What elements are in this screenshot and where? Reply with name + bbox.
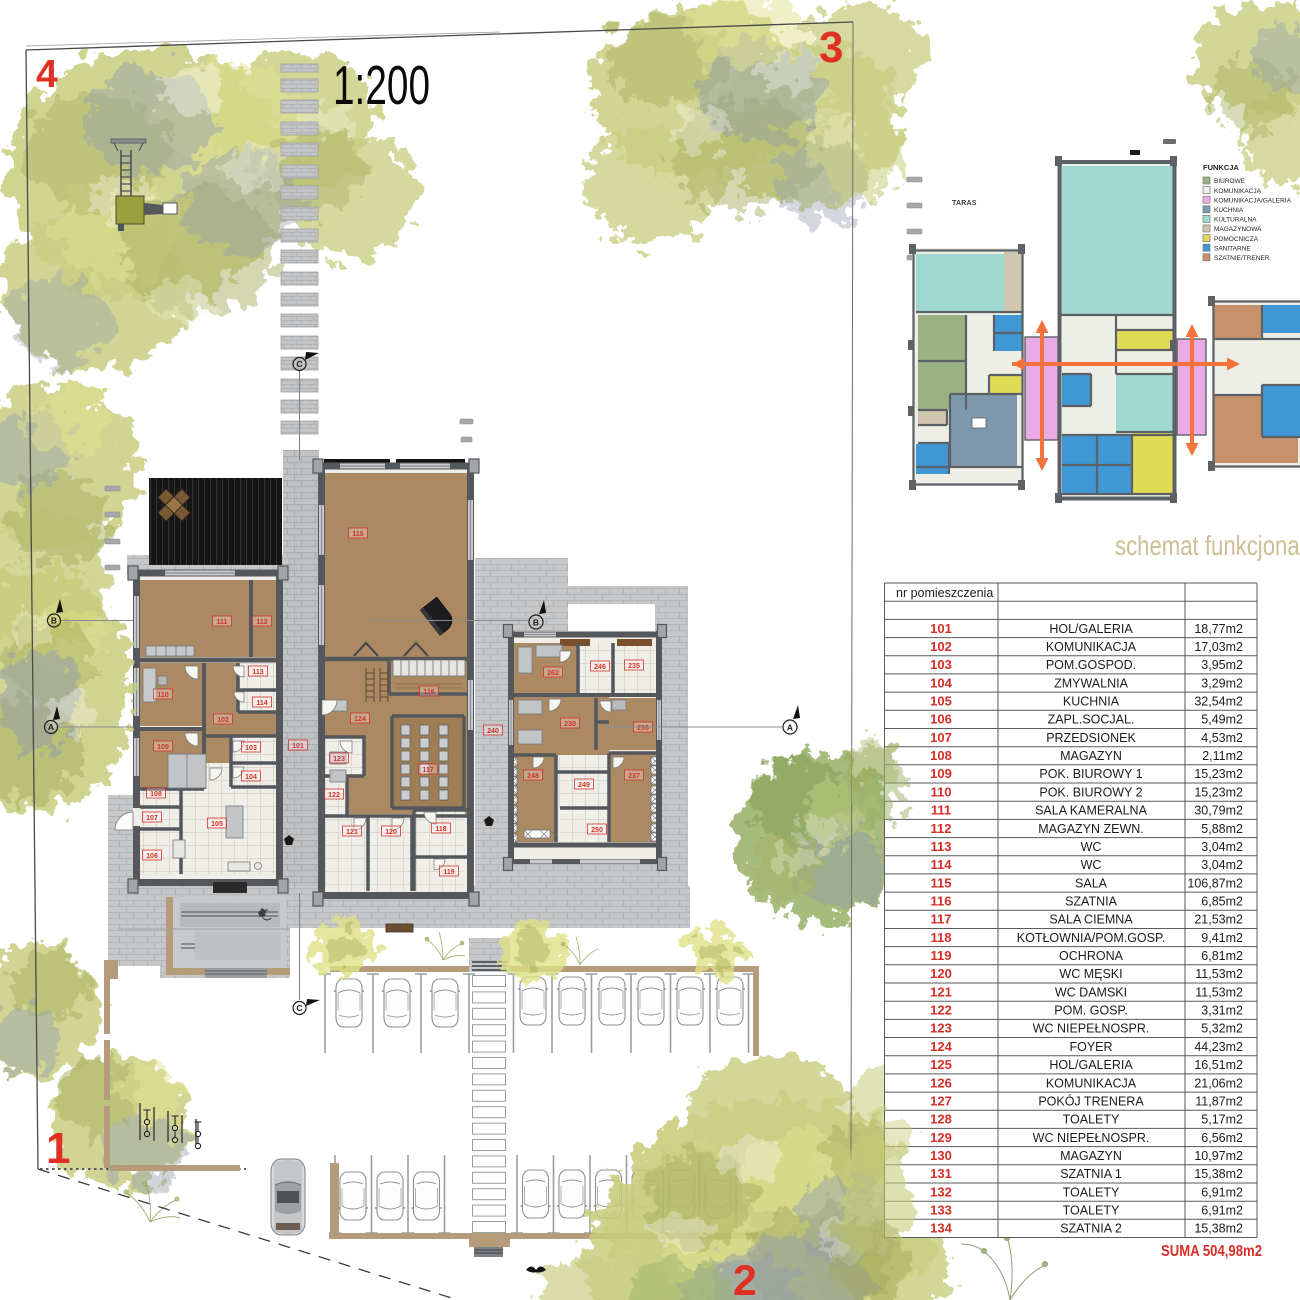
svg-text:121: 121	[346, 829, 358, 836]
svg-text:107: 107	[146, 815, 158, 822]
svg-text:110: 110	[157, 692, 168, 699]
svg-text:SALA: SALA	[1075, 876, 1108, 890]
svg-text:130: 130	[930, 1148, 952, 1163]
svg-text:SUMA 504,98m2: SUMA 504,98m2	[1161, 1243, 1262, 1260]
svg-text:18,77m2: 18,77m2	[1194, 622, 1243, 636]
svg-text:6,85m2: 6,85m2	[1201, 895, 1243, 909]
svg-text:4,53m2: 4,53m2	[1201, 731, 1243, 745]
svg-text:SZATNIA 1: SZATNIA 1	[1060, 1167, 1122, 1181]
svg-text:WC NIEPEŁNOSPR.: WC NIEPEŁNOSPR.	[1033, 1131, 1150, 1145]
svg-text:FUNKCJA: FUNKCJA	[1203, 163, 1239, 172]
svg-text:KUCHNIA: KUCHNIA	[1214, 207, 1244, 214]
svg-text:110: 110	[931, 784, 952, 799]
svg-text:101: 101	[930, 621, 952, 636]
svg-text:102: 102	[930, 639, 952, 654]
svg-text:MAGAZYN ZEWN.: MAGAZYN ZEWN.	[1038, 822, 1144, 836]
svg-text:TOALETY: TOALETY	[1063, 1204, 1120, 1218]
svg-text:112: 112	[931, 821, 952, 836]
svg-text:21,53m2: 21,53m2	[1194, 913, 1243, 927]
svg-text:44,23m2: 44,23m2	[1194, 1040, 1243, 1054]
svg-text:249: 249	[578, 782, 590, 789]
svg-text:6,81m2: 6,81m2	[1201, 949, 1243, 963]
svg-text:5,49m2: 5,49m2	[1201, 713, 1243, 727]
svg-text:ZAPL.SOCJAL.: ZAPL.SOCJAL.	[1048, 713, 1135, 727]
svg-text:5,88m2: 5,88m2	[1201, 822, 1243, 836]
svg-text:nr pomieszczenia: nr pomieszczenia	[896, 586, 993, 600]
svg-text:KOMUNIKACJA: KOMUNIKACJA	[1046, 640, 1137, 654]
svg-text:236: 236	[637, 725, 649, 732]
svg-text:ZMYWALNIA: ZMYWALNIA	[1054, 676, 1129, 690]
svg-text:235: 235	[628, 663, 640, 670]
svg-text:118: 118	[931, 930, 952, 945]
svg-text:21,06m2: 21,06m2	[1194, 1076, 1243, 1090]
svg-text:120: 120	[930, 966, 952, 981]
svg-text:KULTURALNA: KULTURALNA	[1214, 217, 1257, 224]
svg-text:106: 106	[930, 712, 952, 727]
svg-text:109: 109	[930, 766, 952, 781]
svg-text:TOALETY: TOALETY	[1063, 1185, 1120, 1199]
svg-text:3,04m2: 3,04m2	[1201, 858, 1243, 872]
svg-text:102: 102	[217, 717, 229, 724]
svg-text:3,95m2: 3,95m2	[1201, 658, 1243, 672]
svg-text:112: 112	[256, 619, 267, 626]
svg-text:MAGAZYN: MAGAZYN	[1060, 1149, 1122, 1163]
svg-text:5,32m2: 5,32m2	[1201, 1022, 1243, 1036]
svg-text:11,53m2: 11,53m2	[1195, 985, 1243, 999]
svg-text:133: 133	[930, 1203, 952, 1218]
svg-text:108: 108	[150, 791, 162, 798]
svg-text:128: 128	[930, 1112, 952, 1127]
svg-text:3: 3	[819, 23, 843, 72]
svg-text:124: 124	[354, 716, 366, 723]
svg-text:114: 114	[256, 700, 267, 707]
svg-text:11,87m2: 11,87m2	[1195, 1095, 1243, 1109]
svg-text:15,38m2: 15,38m2	[1194, 1167, 1243, 1181]
svg-text:101: 101	[292, 743, 304, 750]
svg-text:240: 240	[487, 728, 499, 735]
svg-text:SANITARNE: SANITARNE	[1214, 245, 1251, 252]
svg-text:WC DAMSKI: WC DAMSKI	[1055, 985, 1127, 999]
svg-text:SZATNIE/TRENER: SZATNIE/TRENER	[1214, 255, 1270, 262]
svg-text:17,03m2: 17,03m2	[1194, 640, 1243, 654]
svg-text:WC MĘSKI: WC MĘSKI	[1059, 967, 1122, 981]
svg-text:118: 118	[435, 826, 446, 833]
svg-text:106,87m2: 106,87m2	[1187, 876, 1243, 890]
svg-text:103: 103	[930, 657, 952, 672]
svg-text:115: 115	[931, 875, 952, 890]
svg-text:11,53m2: 11,53m2	[1195, 967, 1243, 981]
svg-text:15,23m2: 15,23m2	[1194, 767, 1243, 781]
svg-text:1:200: 1:200	[333, 54, 430, 116]
svg-text:108: 108	[930, 748, 952, 763]
svg-text:113: 113	[252, 669, 263, 676]
svg-text:109: 109	[157, 744, 169, 751]
svg-text:TARAS: TARAS	[952, 200, 977, 207]
svg-text:POM. GOSP.: POM. GOSP.	[1054, 1004, 1127, 1018]
svg-text:1: 1	[46, 1124, 70, 1173]
svg-text:119: 119	[443, 869, 454, 876]
svg-text:TOALETY: TOALETY	[1063, 1113, 1120, 1127]
svg-text:114: 114	[931, 857, 953, 872]
svg-text:248: 248	[527, 773, 539, 780]
svg-text:HOL/GALERIA: HOL/GALERIA	[1049, 1058, 1133, 1072]
svg-text:127: 127	[930, 1094, 952, 1109]
svg-text:32,54m2: 32,54m2	[1194, 695, 1243, 709]
svg-text:10,97m2: 10,97m2	[1194, 1149, 1243, 1163]
svg-text:POK. BIUROWY 1: POK. BIUROWY 1	[1039, 767, 1142, 781]
svg-text:117: 117	[931, 912, 952, 927]
svg-text:132: 132	[930, 1184, 952, 1199]
svg-text:KOMUNIKACJA/GALERIA: KOMUNIKACJA/GALERIA	[1214, 197, 1292, 204]
svg-text:3,31m2: 3,31m2	[1201, 1004, 1243, 1018]
svg-text:124: 124	[930, 1039, 952, 1054]
svg-text:POK. BIUROWY 2: POK. BIUROWY 2	[1039, 785, 1142, 799]
svg-text:2: 2	[733, 1257, 757, 1300]
svg-text:C: C	[296, 359, 302, 369]
svg-text:6,56m2: 6,56m2	[1201, 1131, 1243, 1145]
svg-text:5,17m2: 5,17m2	[1201, 1113, 1243, 1127]
svg-text:9,41m2: 9,41m2	[1201, 931, 1243, 945]
svg-text:105: 105	[211, 821, 223, 828]
svg-text:3,29m2: 3,29m2	[1201, 676, 1243, 690]
svg-text:131: 131	[930, 1166, 952, 1181]
svg-text:SZATNIA: SZATNIA	[1065, 895, 1118, 909]
svg-text:106: 106	[146, 853, 158, 860]
svg-text:262: 262	[547, 670, 559, 677]
svg-text:15,23m2: 15,23m2	[1194, 785, 1243, 799]
svg-text:KOMUNIKACJA: KOMUNIKACJA	[1046, 1076, 1137, 1090]
svg-text:16,51m2: 16,51m2	[1194, 1058, 1243, 1072]
svg-text:107: 107	[930, 730, 952, 745]
svg-text:schemat funkcjonalny: schemat funkcjonalny	[1115, 530, 1300, 561]
svg-text:C: C	[296, 1003, 302, 1013]
svg-text:KOTŁOWNIA/POM.GOSP.: KOTŁOWNIA/POM.GOSP.	[1017, 931, 1165, 945]
svg-text:WC: WC	[1081, 840, 1102, 854]
svg-text:POMOCNICZA: POMOCNICZA	[1214, 236, 1259, 243]
svg-text:HOL/GALERIA: HOL/GALERIA	[1049, 622, 1133, 636]
svg-text:SALA CIEMNA: SALA CIEMNA	[1049, 913, 1133, 927]
svg-text:B: B	[533, 617, 539, 627]
svg-text:119: 119	[931, 948, 952, 963]
svg-text:BIUROWE: BIUROWE	[1214, 178, 1246, 185]
svg-text:123: 123	[333, 756, 345, 763]
svg-text:MAGAZYN: MAGAZYN	[1060, 749, 1122, 763]
svg-text:104: 104	[245, 774, 257, 781]
svg-text:FOYER: FOYER	[1069, 1040, 1112, 1054]
svg-text:SALA KAMERALNA: SALA KAMERALNA	[1035, 804, 1148, 818]
svg-text:111: 111	[217, 619, 228, 626]
svg-text:15,38m2: 15,38m2	[1194, 1222, 1243, 1236]
svg-text:104: 104	[930, 675, 952, 690]
svg-text:103: 103	[245, 745, 257, 752]
svg-text:4: 4	[36, 53, 58, 96]
svg-text:122: 122	[930, 1003, 952, 1018]
svg-text:B: B	[51, 616, 57, 626]
svg-text:246: 246	[594, 664, 606, 671]
svg-text:115: 115	[352, 531, 363, 538]
svg-text:123: 123	[930, 1021, 952, 1036]
svg-text:6,91m2: 6,91m2	[1201, 1204, 1243, 1218]
svg-text:WC NIEPEŁNOSPR.: WC NIEPEŁNOSPR.	[1033, 1022, 1150, 1036]
svg-text:129: 129	[930, 1130, 952, 1145]
svg-text:230: 230	[564, 721, 576, 728]
svg-text:117: 117	[422, 767, 433, 774]
svg-text:120: 120	[385, 829, 397, 836]
svg-text:121: 121	[930, 984, 952, 999]
svg-text:125: 125	[930, 1057, 952, 1072]
svg-text:116: 116	[423, 689, 434, 696]
svg-text:KOMUNIKACJA: KOMUNIKACJA	[1214, 188, 1262, 195]
svg-text:POKÓJ TRENERA: POKÓJ TRENERA	[1038, 1094, 1144, 1109]
svg-text:105: 105	[930, 694, 952, 709]
svg-text:113: 113	[931, 839, 952, 854]
svg-text:250: 250	[591, 827, 603, 834]
svg-text:122: 122	[328, 792, 340, 799]
svg-text:PRZEDSIONEK: PRZEDSIONEK	[1046, 731, 1136, 745]
svg-text:MAGAZYNOWA: MAGAZYNOWA	[1214, 226, 1262, 233]
svg-text:3,04m2: 3,04m2	[1201, 840, 1243, 854]
svg-text:A: A	[48, 722, 54, 732]
svg-text:134: 134	[930, 1221, 952, 1236]
svg-text:A: A	[787, 722, 793, 732]
svg-text:126: 126	[930, 1075, 952, 1090]
svg-text:KUCHNIA: KUCHNIA	[1063, 695, 1120, 709]
svg-text:WC: WC	[1081, 858, 1102, 872]
svg-text:237: 237	[628, 773, 640, 780]
svg-text:30,79m2: 30,79m2	[1194, 804, 1243, 818]
svg-text:116: 116	[931, 894, 952, 909]
svg-text:111: 111	[931, 803, 951, 818]
svg-text:SZATNIA 2: SZATNIA 2	[1060, 1222, 1122, 1236]
svg-text:6,91m2: 6,91m2	[1201, 1185, 1243, 1199]
svg-text:OCHRONA: OCHRONA	[1059, 949, 1124, 963]
svg-text:POM.GOSPOD.: POM.GOSPOD.	[1046, 658, 1136, 672]
svg-text:2,11m2: 2,11m2	[1202, 749, 1243, 763]
